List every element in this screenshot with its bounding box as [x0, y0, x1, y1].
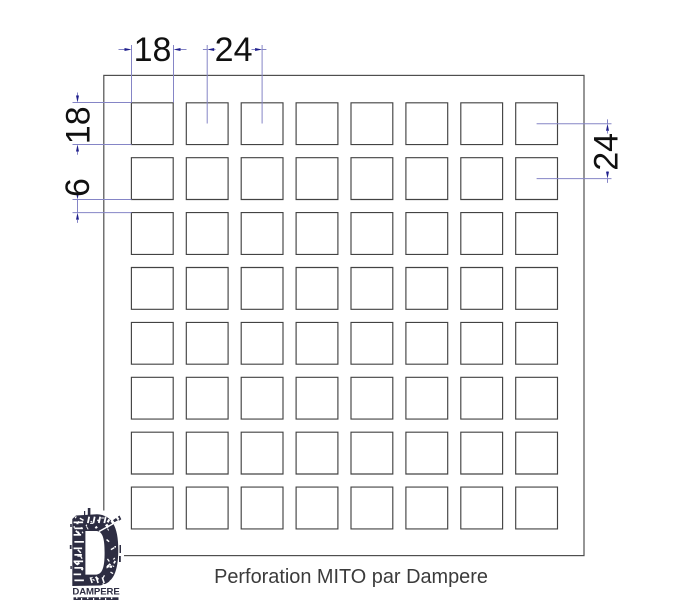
svg-text:DAMPERE: DAMPERE — [72, 587, 120, 598]
svg-text:18: 18 — [134, 31, 172, 69]
svg-text:24: 24 — [588, 133, 626, 171]
svg-text:Perforation MITO par Dampere: Perforation MITO par Dampere — [214, 566, 488, 588]
svg-text:6: 6 — [59, 178, 97, 197]
svg-text:24: 24 — [215, 31, 253, 69]
svg-text:18: 18 — [60, 106, 98, 144]
